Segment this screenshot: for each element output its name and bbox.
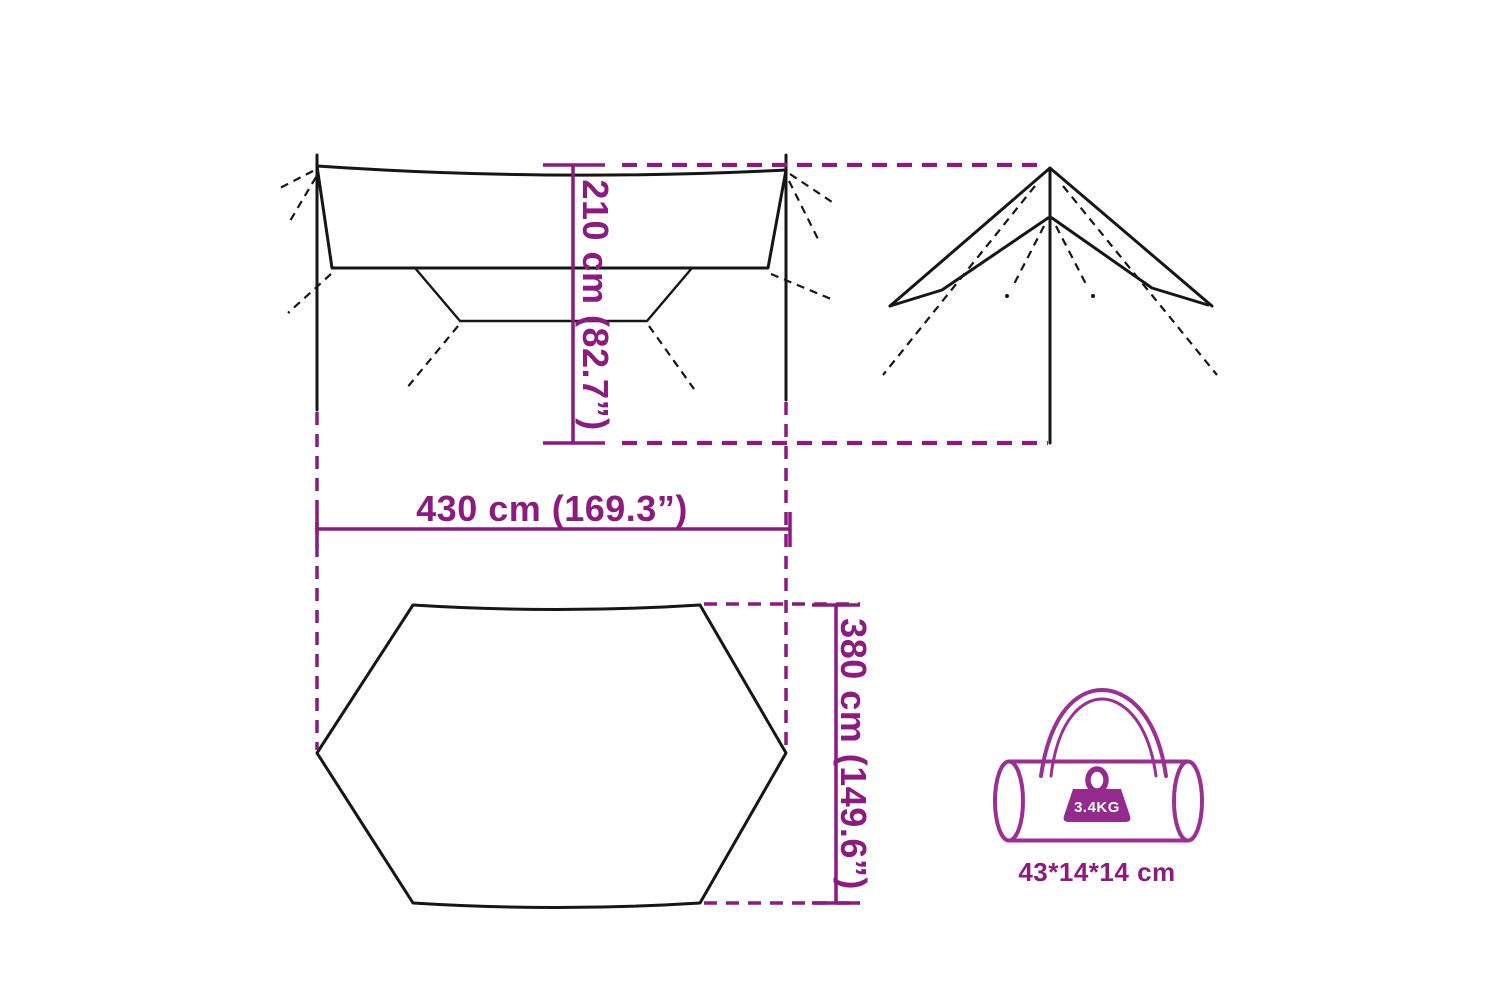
width-dimension-label: 430 cm (169.3”) bbox=[416, 488, 688, 529]
front-view bbox=[280, 155, 832, 410]
left-underside bbox=[890, 218, 1048, 306]
tarp-footprint bbox=[317, 605, 786, 908]
guy-lines-front bbox=[280, 171, 832, 389]
bag-weight-label: 3.4KG bbox=[1074, 799, 1120, 816]
side-view bbox=[883, 168, 1217, 443]
height-dimension-label: 210 cm (82.7”) bbox=[575, 179, 616, 430]
depth-dimension-label: 380 cm (149.6”) bbox=[833, 618, 874, 890]
tarp-dimension-diagram: 430 cm (169.3”) 210 cm (82.7”) 380 cm (1… bbox=[0, 0, 1500, 1000]
bag-end-right bbox=[1174, 762, 1202, 841]
carry-bag: 3.4KG 43*14*14 cm bbox=[995, 690, 1202, 887]
tarp-inner-panel bbox=[415, 268, 692, 321]
tarp-canopy-front bbox=[317, 166, 786, 268]
right-underside bbox=[1052, 218, 1208, 305]
top-view-hexagon bbox=[317, 605, 786, 908]
bag-end-left bbox=[995, 762, 1023, 841]
bag-size-label: 43*14*14 cm bbox=[1018, 857, 1175, 887]
weight-icon: 3.4KG bbox=[1064, 769, 1131, 822]
